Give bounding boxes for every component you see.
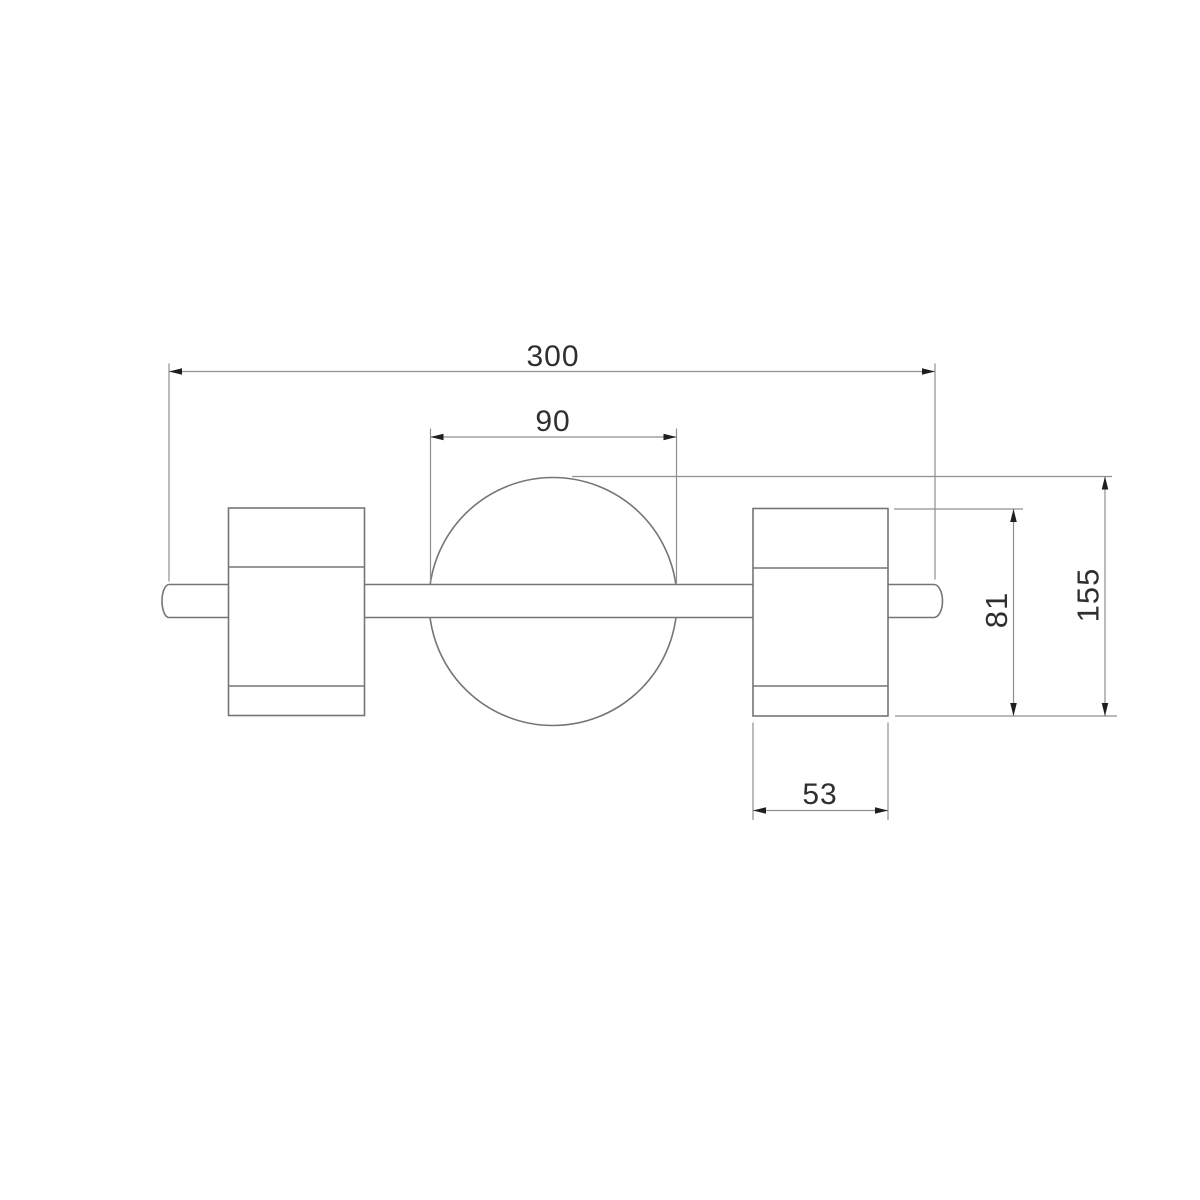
arrow-right-icon [664, 434, 677, 441]
arrow-left-icon [753, 807, 766, 814]
overall-width-dimension-label: 300 [526, 340, 579, 373]
spot-width-dimension-label: 53 [802, 778, 837, 811]
plate-diameter-dimension-label: 90 [535, 405, 570, 438]
arrow-up-icon [1010, 509, 1017, 522]
arrow-right-icon [922, 368, 935, 375]
technical-drawing-svg: 300 90 81 155 [0, 0, 1200, 1200]
dimension-spot-width: 53 [753, 723, 888, 821]
right-spot-cylinder [753, 509, 888, 717]
dimension-plate-diameter: 90 [431, 405, 677, 583]
left-spot-body [229, 508, 365, 716]
arrow-down-icon [1010, 703, 1017, 716]
right-spot-body [753, 509, 888, 717]
arrow-left-icon [431, 434, 444, 441]
drawing-canvas: 300 90 81 155 [0, 0, 1200, 1200]
arrow-down-icon [1102, 703, 1109, 716]
arrow-right-icon [875, 807, 888, 814]
arrow-left-icon [169, 368, 182, 375]
left-spot-cylinder [229, 508, 365, 716]
overall-height-dimension-label: 155 [1071, 568, 1106, 623]
spot-height-dimension-label: 81 [979, 592, 1014, 628]
arrow-up-icon [1102, 477, 1109, 490]
